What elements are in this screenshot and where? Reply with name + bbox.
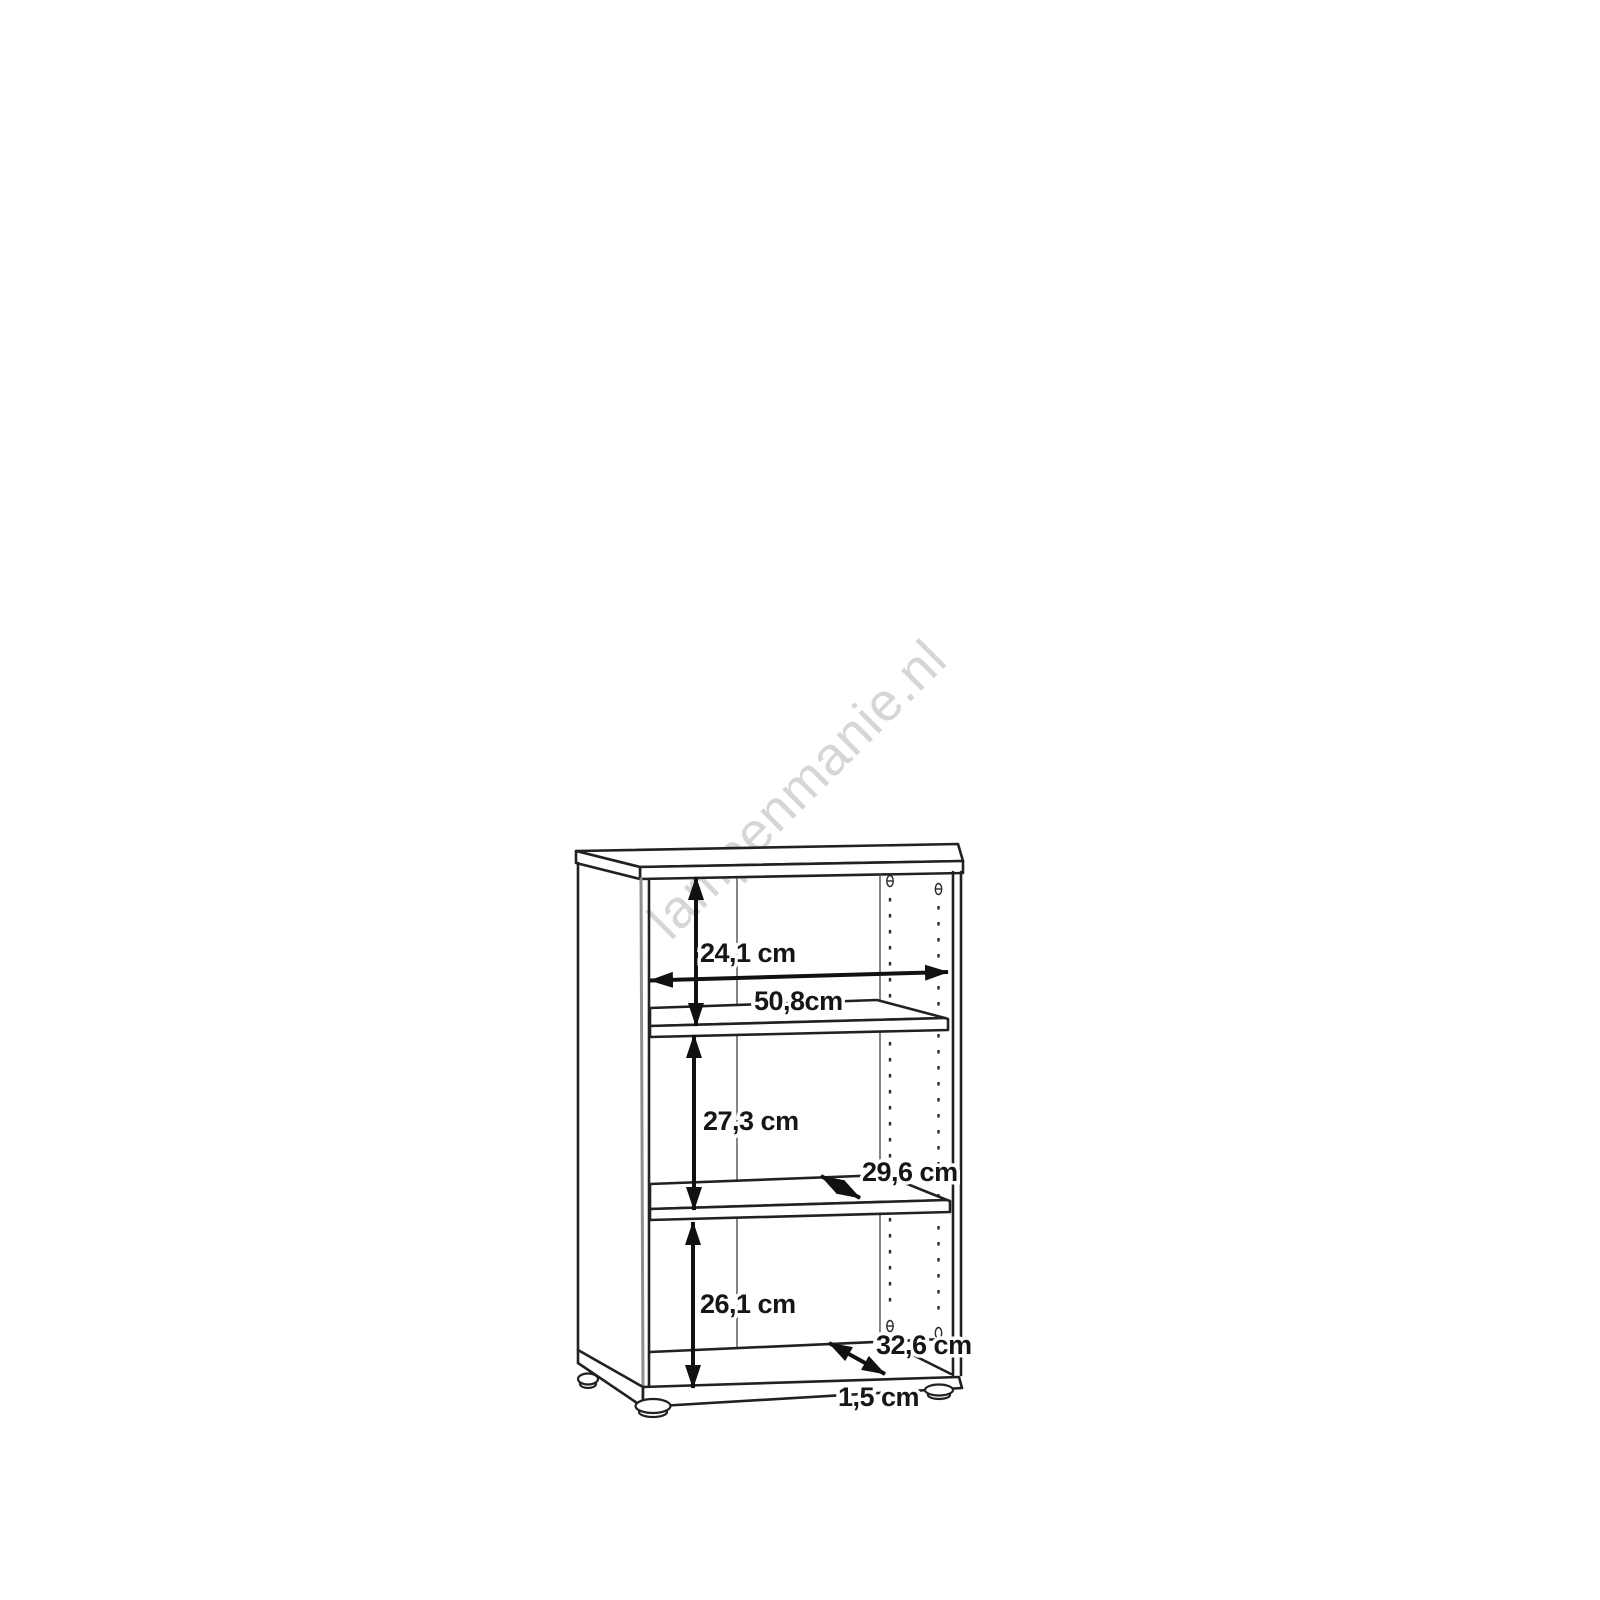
- dimension-diagram-page: lampenmanie.nl: [0, 0, 1600, 1600]
- foot-front-left: [636, 1399, 671, 1413]
- dim-label-middle-section-height: 27,3 cm: [703, 1106, 799, 1136]
- foot-back-left: [578, 1374, 598, 1385]
- dim-label-shelf-depth: 29,6 cm: [862, 1157, 958, 1187]
- dim-label-top-section-height: 24,1 cm: [700, 938, 796, 968]
- dim-label-base-height: 1,5 cm: [838, 1382, 919, 1412]
- bookcase-dimension-drawing: lampenmanie.nl: [0, 0, 1600, 1600]
- peg-holes-column-1: [887, 876, 894, 1332]
- dim-label-bottom-depth: 32,6 cm: [876, 1330, 972, 1360]
- foot-front-right: [925, 1385, 953, 1396]
- watermark-text: lampenmanie.nl: [636, 628, 958, 950]
- left-panel-front-outer-edge: [641, 879, 643, 1387]
- dim-label-inner-width: 50,8cm: [754, 986, 843, 1016]
- dim-label-bottom-section-height: 26,1 cm: [700, 1289, 796, 1319]
- dimension-annotations: 24,1 cm 50,8cm 27,3 cm 29,6 cm 26,1 cm 3…: [650, 877, 972, 1412]
- peg-holes-column-2: [935, 884, 942, 1339]
